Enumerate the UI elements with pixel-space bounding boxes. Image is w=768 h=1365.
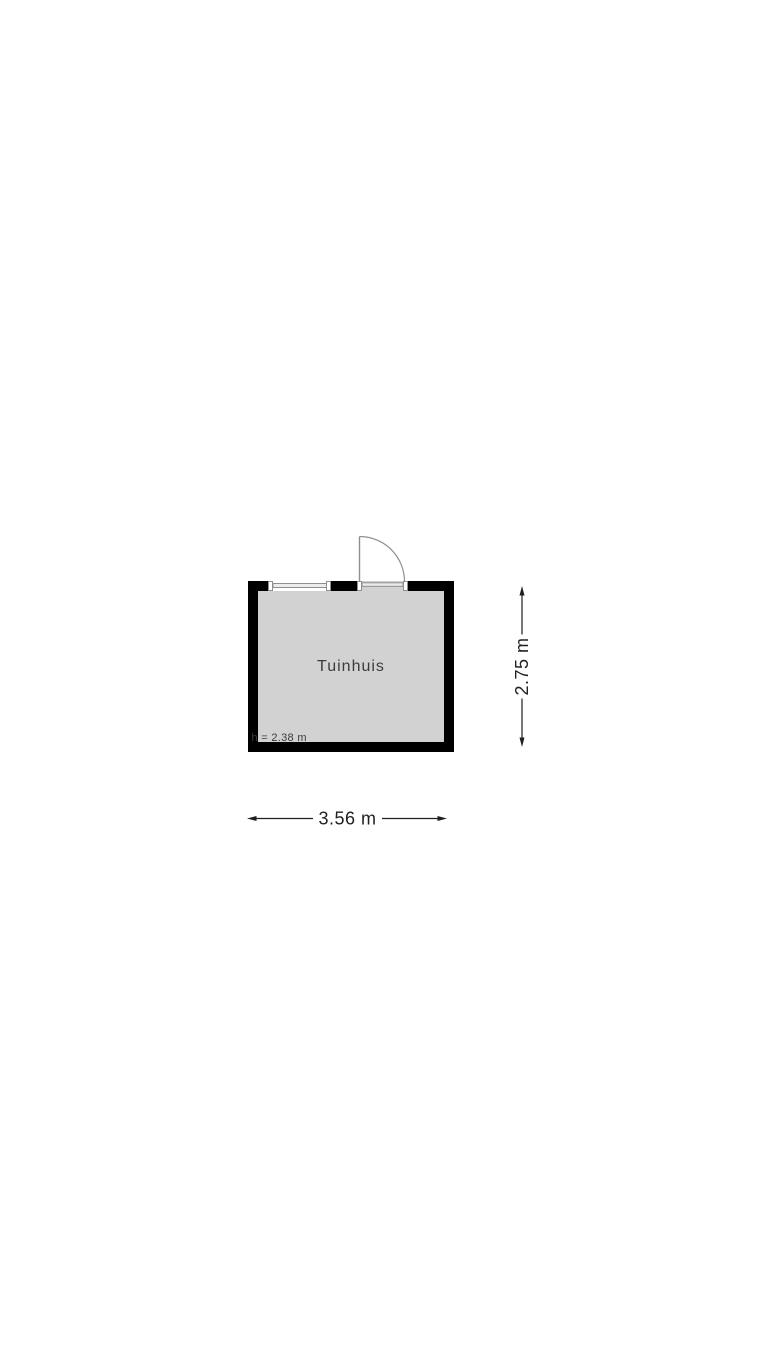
- arrow-up-icon: [520, 586, 525, 596]
- depth-dimension-label: 2.75 m: [512, 637, 532, 695]
- door-jamb-right: [404, 582, 408, 591]
- dimension-horizontal: 3.56 m: [247, 809, 447, 829]
- dimension-vertical: 2.75 m: [512, 586, 532, 747]
- arrow-left-icon: [247, 816, 257, 821]
- window-end-cap-right: [327, 582, 331, 591]
- width-dimension-label: 3.56 m: [318, 809, 376, 829]
- door-jamb-left: [358, 582, 362, 591]
- window-pane: [273, 584, 327, 588]
- arrow-down-icon: [520, 738, 525, 748]
- room-name-label: Tuinhuis: [317, 658, 385, 675]
- window-symbol: [268, 581, 331, 591]
- floorplan-canvas: Tuinhuis h = 2.38 m 2.75 m 3.56 m: [0, 0, 768, 1365]
- arrow-right-icon: [438, 816, 448, 821]
- door-symbol: [357, 537, 408, 592]
- door-swing-arc: [360, 537, 405, 582]
- door-threshold: [362, 583, 403, 587]
- floorplan-page: Tuinhuis h = 2.38 m 2.75 m 3.56 m: [0, 0, 768, 1365]
- window-end-cap-left: [269, 582, 273, 591]
- ceiling-height-label: h = 2.38 m: [252, 732, 307, 744]
